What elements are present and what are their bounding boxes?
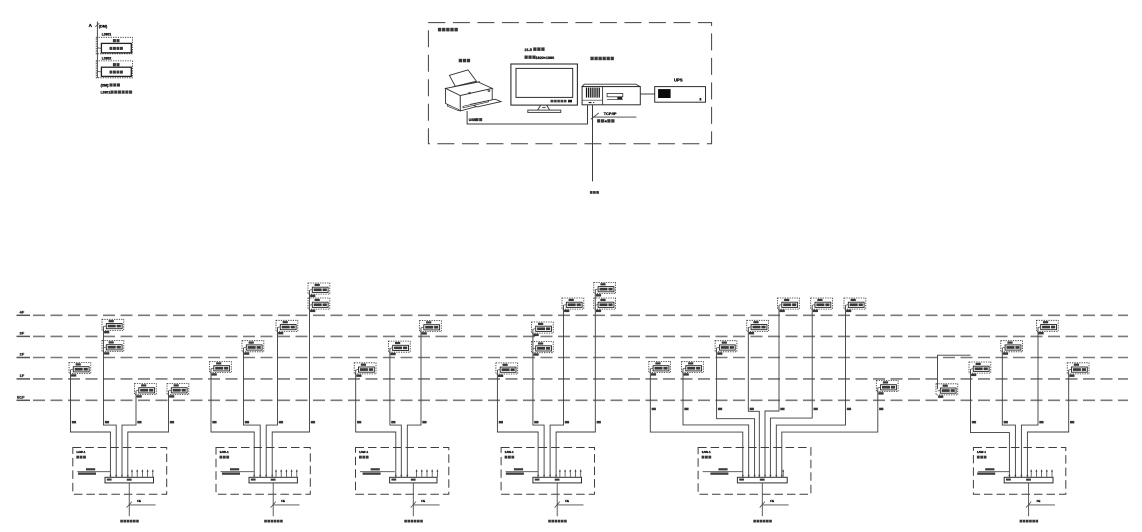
svg-text:L0301:: L0301: [101, 91, 112, 95]
svg-text:1AW-1: 1AW-1 [76, 450, 85, 454]
svg-text:FE: FE [421, 499, 425, 503]
svg-text:UPS: UPS [674, 77, 683, 82]
svg-text:1AW-1: 1AW-1 [977, 450, 986, 454]
svg-text:FE: FE [565, 499, 569, 503]
svg-text:1AW-1: 1AW-1 [702, 450, 711, 454]
svg-text:4F: 4F [20, 310, 25, 315]
svg-text:1920×1080: 1920×1080 [536, 56, 555, 60]
svg-text:1F: 1F [20, 373, 25, 378]
svg-text:4: 4 [605, 120, 607, 124]
svg-text:FE: FE [137, 499, 141, 503]
svg-text:8: 8 [700, 98, 702, 102]
svg-text:FE: FE [1037, 499, 1041, 503]
svg-text:1AW-1: 1AW-1 [220, 450, 229, 454]
svg-text:1AW-1: 1AW-1 [505, 450, 514, 454]
svg-text:FE: FE [281, 499, 285, 503]
svg-text:B1F: B1F [17, 395, 25, 400]
svg-text:(DM):: (DM): [101, 84, 110, 88]
svg-text:FE: FE [770, 499, 774, 503]
svg-text:3F: 3F [20, 331, 25, 336]
svg-text:(DM): (DM) [99, 24, 108, 28]
svg-text:21.5: 21.5 [525, 48, 532, 52]
svg-text:2F: 2F [20, 352, 25, 357]
svg-text:USB: USB [469, 118, 477, 122]
svg-text:L0302: L0302 [102, 57, 112, 61]
svg-text:TCP/IP: TCP/IP [604, 111, 617, 116]
svg-text:L0301: L0301 [102, 33, 112, 37]
svg-text:1AW-1: 1AW-1 [359, 450, 368, 454]
